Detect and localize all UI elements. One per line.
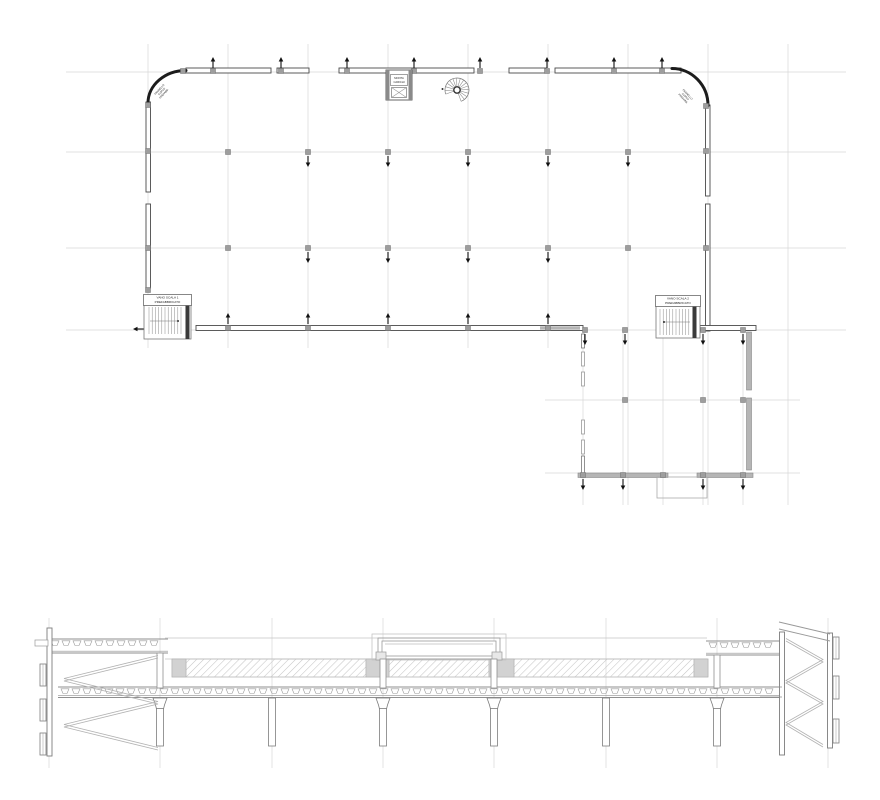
section-grid	[49, 618, 828, 768]
plan-column	[306, 246, 311, 251]
plan-column	[626, 150, 631, 155]
plan-column	[623, 328, 628, 333]
architectural-drawing-sheet: VANO SCALA 1PREFABBRICATOVANO SCALA 2PRE…	[0, 0, 880, 800]
plan-column	[701, 398, 706, 403]
plan-column	[386, 246, 391, 251]
plan-walls	[146, 68, 756, 498]
plan-grid	[66, 44, 846, 505]
plan-column	[626, 246, 631, 251]
plan-column	[661, 473, 666, 478]
plan-columns	[146, 69, 746, 478]
plan-column	[146, 103, 151, 108]
drawing-canvas: VANO SCALA 1PREFABBRICATOVANO SCALA 2PRE…	[0, 0, 880, 800]
plan-column	[386, 326, 391, 331]
plan-column	[386, 150, 391, 155]
plan-stair-core-1-label: PREFABBRICATO	[155, 300, 181, 304]
plan-column	[660, 69, 665, 74]
plan-column	[466, 326, 471, 331]
plan-column	[146, 149, 151, 154]
plan-column	[581, 473, 586, 478]
plan-stair-core-1: VANO SCALA 1PREFABBRICATO	[144, 295, 192, 340]
plan-column	[306, 326, 311, 331]
plan-column	[741, 328, 746, 333]
corner-label-right: PANNELLOCURVOPREFABB.	[677, 88, 694, 105]
plan-column	[741, 473, 746, 478]
plan-stair-core-2-label: PREFABBRICATO	[665, 301, 691, 305]
plan-column	[181, 69, 186, 74]
plan-column	[466, 246, 471, 251]
plan-column	[466, 150, 471, 155]
plan-column	[701, 473, 706, 478]
section-columns	[153, 698, 724, 746]
plan-column	[146, 246, 151, 251]
plan-column	[226, 246, 231, 251]
plan-column	[623, 398, 628, 403]
plan-column	[546, 150, 551, 155]
plan-column	[701, 328, 706, 333]
plan-column	[146, 288, 151, 293]
plan-column	[226, 150, 231, 155]
plan-column	[546, 326, 551, 331]
plan-column	[306, 150, 311, 155]
elevator-label: MONTA	[394, 76, 404, 80]
plan-column	[741, 398, 746, 403]
plan-column	[583, 328, 588, 333]
section-roof-girder-band	[172, 659, 708, 677]
plan-arrows	[133, 57, 745, 490]
plan-column	[704, 246, 709, 251]
plan-corner-arcs	[148, 69, 708, 106]
plan-spiral-stair	[442, 78, 470, 101]
plan-column	[478, 69, 483, 74]
plan-stair-core-2: VANO SCALA 2PREFABBRICATO	[656, 296, 701, 339]
plan-column	[345, 69, 350, 74]
plan-column	[546, 246, 551, 251]
plan-column	[621, 473, 626, 478]
plan-freight-elevator: MONTACARICHI	[386, 70, 412, 100]
elevator-label: CARICHI	[393, 80, 404, 84]
plan-column	[545, 69, 550, 74]
plan-column	[211, 69, 216, 74]
plan-column	[704, 104, 709, 109]
section-skylight	[372, 634, 506, 660]
plan-column	[279, 69, 284, 74]
plan-column	[226, 326, 231, 331]
plan-column	[704, 149, 709, 154]
plan-column	[612, 69, 617, 74]
